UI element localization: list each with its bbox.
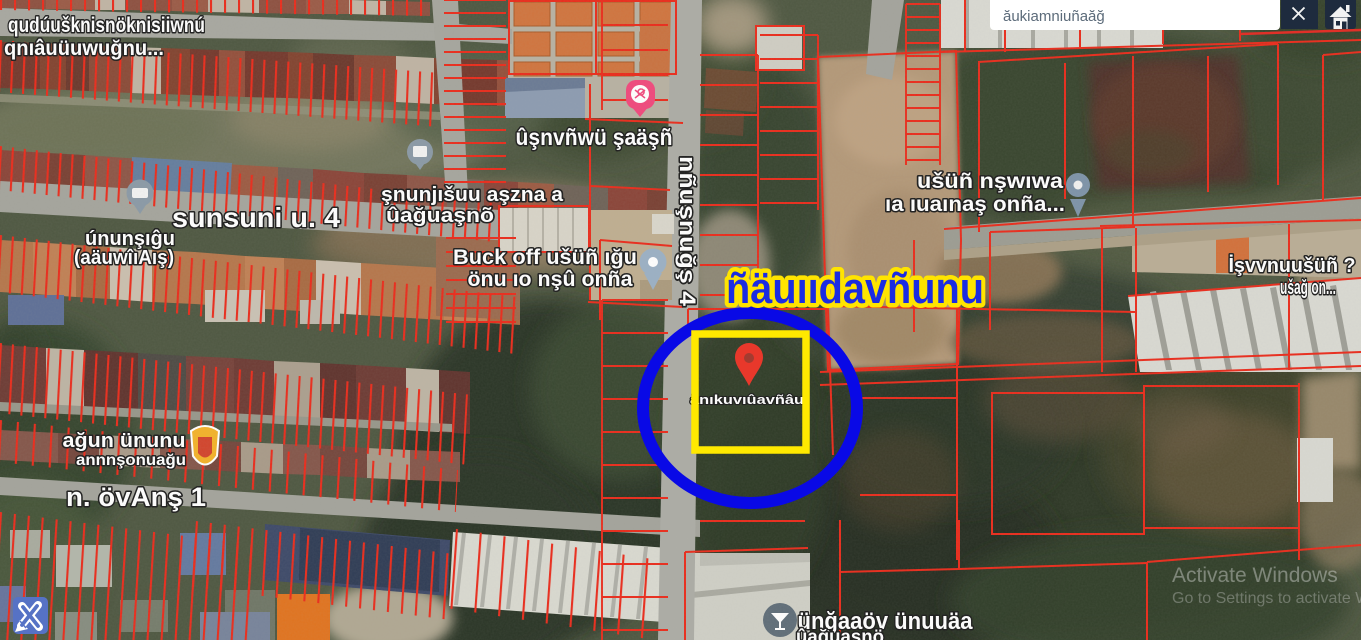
svg-text:Go to Settings to activate Win: Go to Settings to activate Windo bbox=[1172, 590, 1361, 607]
svg-text:ñäuııdavñunu: ñäuııdavñunu bbox=[726, 264, 984, 313]
svg-text:Activate Windows: Activate Windows bbox=[1172, 564, 1338, 587]
svg-text:ăukiamniuñaăğ: ăukiamniuñaăğ bbox=[1003, 8, 1105, 25]
